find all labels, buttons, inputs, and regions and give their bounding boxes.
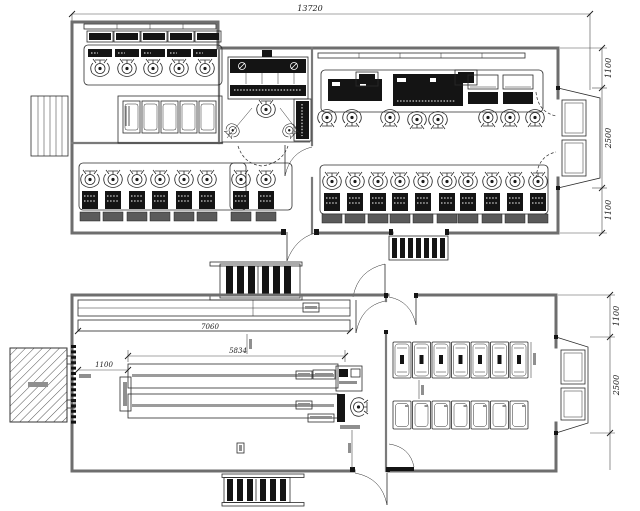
desk-row-upper-left xyxy=(84,45,222,85)
operator-station-row-upper-left xyxy=(79,163,292,221)
exterior-louver xyxy=(31,96,68,156)
stairs-lower xyxy=(222,474,304,506)
stairs-upper xyxy=(389,236,448,260)
bed-unit xyxy=(432,342,450,378)
locker-row-lower xyxy=(393,401,528,429)
door-swing xyxy=(355,473,387,505)
operator-chair xyxy=(408,112,427,130)
locker-cabinet-row xyxy=(118,96,222,143)
operator-station xyxy=(231,170,251,221)
door-swing xyxy=(287,232,315,261)
dispatcher-console xyxy=(336,366,368,429)
operator-station xyxy=(150,170,170,221)
operator-station xyxy=(174,170,194,221)
dimension-lower-strip: 7060 xyxy=(75,323,353,334)
operator-chair xyxy=(318,110,337,128)
operator-station xyxy=(368,172,388,223)
bed-row xyxy=(393,342,536,378)
operator-station xyxy=(437,172,457,223)
cabinet-unit xyxy=(180,101,197,133)
monitor-row xyxy=(87,31,221,42)
bed-unit xyxy=(510,342,528,378)
monitor-desk-station xyxy=(88,49,112,77)
dimension-small-vertical xyxy=(247,334,252,354)
entry-vestibule-upper xyxy=(556,86,600,190)
monitor-desk-station xyxy=(115,49,139,77)
floor-plan-page: 13720 xyxy=(0,0,640,511)
door-swing xyxy=(389,444,414,471)
cabinet-unit xyxy=(161,101,178,133)
operator-chair xyxy=(429,112,448,130)
dimension-label: 1100 xyxy=(95,361,113,369)
locker-unit xyxy=(510,401,528,429)
window-band-upper-right xyxy=(318,53,525,58)
dimension-label: 1100 xyxy=(612,306,621,326)
operator-station xyxy=(345,172,365,223)
operator-station xyxy=(458,172,478,223)
cabinet-unit xyxy=(123,101,140,133)
wall-marker xyxy=(237,443,244,453)
cabinet-unit xyxy=(199,101,216,133)
door-swing xyxy=(356,300,385,333)
bed-unit xyxy=(491,342,509,378)
dimension-label: 1100 xyxy=(604,200,613,220)
dimension-label-total: 13720 xyxy=(297,4,322,13)
cabinet-unit xyxy=(142,101,159,133)
operator-station xyxy=(505,172,525,223)
dimension-aisle xyxy=(419,380,424,399)
dimension-label: 1100 xyxy=(604,58,613,78)
locker-unit xyxy=(413,401,431,429)
dimension-chain-upper-right: 1100 2500 1100 xyxy=(560,45,613,236)
operator-station xyxy=(413,172,433,223)
operator-station xyxy=(197,170,217,221)
entry-vestibule-lower xyxy=(554,335,588,435)
operator-chair xyxy=(501,110,520,128)
operator-station xyxy=(322,172,342,223)
operator-chair xyxy=(381,110,400,128)
bed-unit xyxy=(393,342,411,378)
monitor-desk-station xyxy=(141,49,165,77)
door-swing-dashed xyxy=(536,92,556,116)
operator-station xyxy=(103,170,123,221)
dimension-label: 7060 xyxy=(201,323,219,331)
bed-unit xyxy=(452,342,470,378)
projection-screen xyxy=(10,348,91,422)
bed-unit xyxy=(413,342,431,378)
operator-chair xyxy=(257,100,276,118)
long-table-lower xyxy=(128,394,338,422)
dimension-label: 2500 xyxy=(604,128,613,149)
floor-plan-drawing: 13720 xyxy=(0,0,640,511)
locker-unit xyxy=(432,401,450,429)
bed-unit xyxy=(471,342,489,378)
operator-station-row-upper-right xyxy=(320,165,548,223)
operator-station xyxy=(127,170,147,221)
window-band-upper-left xyxy=(84,24,216,29)
operator-chair xyxy=(351,398,369,417)
operator-station xyxy=(390,172,410,223)
monitor-desk-station xyxy=(167,49,191,77)
operator-chair xyxy=(479,110,498,128)
locker-unit xyxy=(393,401,411,429)
dimension-lower-tables: 5834 xyxy=(125,347,348,362)
door-swing xyxy=(353,264,385,297)
door-swing xyxy=(285,145,312,176)
dimension-label: 2500 xyxy=(612,375,621,396)
door-swing xyxy=(389,297,416,325)
console-bench-upper-right xyxy=(318,70,545,129)
operator-station xyxy=(528,172,548,223)
dimension-small-vertical xyxy=(348,430,352,468)
instructor-console-island xyxy=(223,50,311,166)
dimension-label: 5834 xyxy=(229,347,247,355)
locker-unit xyxy=(491,401,509,429)
operator-station xyxy=(256,170,276,221)
monitor-desk-station xyxy=(193,49,217,77)
operator-chair xyxy=(223,121,242,140)
locker-unit xyxy=(471,401,489,429)
locker-unit xyxy=(452,401,470,429)
operator-chair xyxy=(526,110,545,128)
operator-station xyxy=(482,172,502,223)
dimension-screen-offset: 1100 xyxy=(75,361,131,373)
operator-chair xyxy=(343,110,362,128)
operator-station xyxy=(80,170,100,221)
